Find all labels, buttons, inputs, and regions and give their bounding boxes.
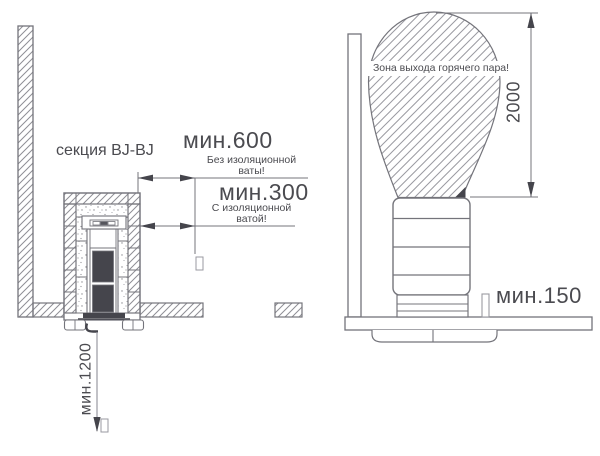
section-label: секция BJ-BJ	[56, 143, 154, 160]
stove-wall-right	[128, 204, 140, 313]
steam-zone-balloon	[369, 12, 501, 198]
insulation-right	[117, 217, 128, 313]
dim-600-note-line2: ваты!	[203, 166, 300, 177]
stove-top-vent	[82, 216, 126, 229]
dim-600-note-line1: Без изоляционной	[203, 155, 300, 166]
dim-150-value: мин.150	[496, 284, 582, 307]
stove-side-base	[397, 295, 468, 317]
dimension-min1200	[93, 332, 108, 432]
dim-300-note-line1: С изоляционной	[203, 203, 300, 214]
dim-600-note: Без изоляционной ваты!	[203, 155, 300, 176]
dim-600-value: мин.600	[183, 128, 273, 152]
stove-door	[90, 248, 116, 313]
right-wall	[348, 34, 361, 317]
dim-2000-value: 2000	[505, 81, 524, 123]
stove-cross-section	[64, 193, 144, 332]
marker-box	[196, 257, 203, 270]
marker-box	[101, 419, 108, 432]
stove-installation-diagram: секция BJ-BJ мин.600 Без изоляционной ва…	[0, 0, 600, 456]
left-wall	[18, 26, 33, 317]
insulation-left	[76, 217, 87, 313]
min150-marker	[482, 294, 489, 317]
dim-300-value: мин.300	[219, 180, 309, 204]
dim-300-note: С изоляционной ватой!	[203, 203, 300, 224]
stove-side-feet	[372, 330, 497, 342]
stove-feet	[65, 320, 144, 332]
dim-300-note-line2: ватой!	[203, 214, 300, 225]
dim-1200-value: мин.1200	[79, 343, 96, 416]
stove-wall-left	[64, 204, 76, 313]
steam-zone-label: Зона выхода горячего пара!	[368, 61, 514, 76]
stove-top-band	[64, 193, 140, 204]
cable-hook	[86, 324, 98, 332]
insulation-top	[76, 204, 128, 217]
right-floor	[345, 317, 592, 330]
